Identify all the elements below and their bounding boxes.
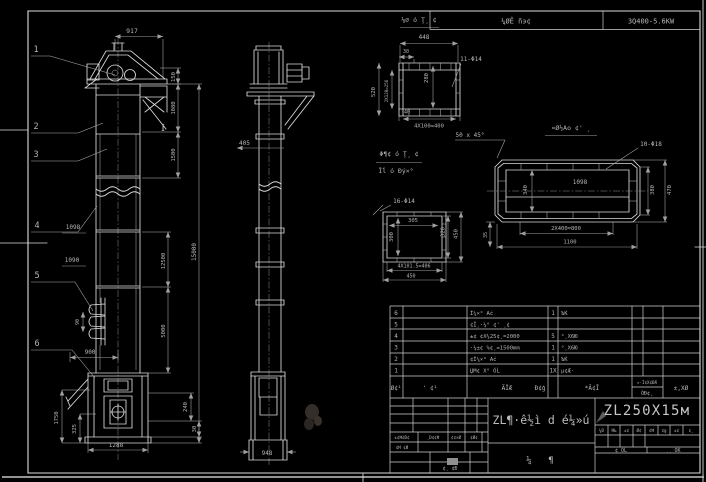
title-small-cells: ¼Ð ĦЬ ±¢ Ø¢ ¢Ħ ¢g ±¢ ¢¸: [599, 428, 694, 434]
dim-470: 470: [667, 185, 673, 195]
cell-no: 2: [394, 356, 398, 363]
dim-1080: 1080: [171, 101, 177, 114]
table-row: 2 ¢Ĭ¼×° Аć 1 ЪЌ: [394, 355, 568, 363]
dim-280: 280: [424, 73, 430, 83]
motor-spec: 3Q400-5.6KW: [628, 18, 675, 26]
model-number: ZL250X15м: [604, 403, 691, 419]
dim-800: 2X400=800: [551, 226, 581, 232]
cell-qty: 1X: [549, 368, 557, 375]
dim-bucket: 90: [75, 319, 81, 325]
dim-c1098: 1098: [573, 179, 588, 186]
dim-1288: 1288: [109, 442, 124, 449]
motor-spec-table: ¼ØÊ ñэ¢ 3Q400-5.6KW: [430, 11, 700, 30]
cell-name: ·¼±¢ %¢¸=1500mm: [470, 346, 520, 352]
dim-c-holes: 10-Φ18: [640, 141, 662, 148]
cell-mat: °¸X6Ю: [561, 346, 578, 352]
dim-340: 340: [523, 185, 529, 195]
dim-2x128: 2X128=256: [384, 79, 389, 102]
callout-6: 6: [34, 339, 39, 349]
dim-520: 520: [371, 87, 377, 97]
subtitle-right: ¶: [548, 456, 553, 466]
section-mark: I: [161, 124, 165, 134]
cell-mat: μ¢Æ·: [561, 369, 574, 375]
header-rem: ±,XØ: [674, 385, 689, 392]
dim-1090-left: 1090: [65, 257, 80, 264]
dim-948: 948: [262, 450, 273, 457]
callout-4: 4: [34, 221, 39, 231]
table-row: 6 Ĭ¼×° Аć 1 ЪЌ: [394, 309, 568, 317]
dim-405: 405: [239, 140, 250, 147]
header-no: Ø¢¹: [391, 385, 402, 392]
header-name: ÃЇÆ: [502, 385, 513, 392]
dim-1098-left: 1098: [66, 224, 81, 231]
table-row: 5 ¢Ĭ¸·¼° ¢' ¸¢: [394, 321, 510, 329]
rev-cell: ¢Ħ ¢Ø: [396, 445, 409, 450]
dim-320: 320: [441, 227, 447, 237]
cell-no: 3: [394, 345, 398, 352]
dim-1100: 1100: [563, 240, 576, 246]
cell-name: ±¢ ¢X¼25¢¸=2000: [470, 334, 520, 340]
cell-qty: 1: [551, 345, 555, 352]
table-header-row: Ø¢¹ ' ¢¹ ÃЇÆ Đ¢ģ *Ā¢Ī ¤·Ĩ¢X¢ĐÆ ÓÐ¢¸ ±,XØ: [391, 380, 689, 397]
dim-a-holes: 11-Φ14: [460, 56, 482, 63]
front-view-linework: [66, 38, 167, 460]
dim-30: 30: [192, 426, 198, 433]
title-block: ±¢Ħ¢Đ¢ ¸Đ¢¢Ħ ¢¢×Ø ¢Ø¢ ¢Ħ ¢Ø ¢¸ ¢Ð ZL¶·ê½…: [390, 398, 700, 473]
cell-no: 4: [394, 333, 398, 340]
signature-right: ¸¸ ÓЌ: [665, 447, 680, 454]
highlight-cell: [447, 458, 458, 465]
callout-2: 2: [33, 122, 38, 132]
parts-list: 6 Ĭ¼×° Аć 1 ЪЌ 5 ¢Ĭ¸·¼° ¢' ¸¢ 4 ±¢ ¢X¼25…: [390, 306, 700, 473]
small-cell: ¢g: [661, 428, 667, 433]
table-row: 3 ·¼±¢ %¢¸=1500mm 1 °¸X6Ю: [394, 345, 578, 352]
dim-1750: 1750: [54, 411, 60, 424]
cad-drawing: 917 150 1080 1500 15000 12500 5000 1098 …: [0, 0, 706, 482]
dim-head-width: 917: [126, 27, 138, 35]
dim-305: 305: [408, 218, 418, 224]
callout-1: 1: [33, 45, 38, 55]
detail-c-title: ¤Ø½Ао ¢' ¸: [551, 124, 590, 132]
dim-4x100: 4X100=400: [414, 124, 444, 130]
dim-35: 35: [483, 232, 489, 238]
detail-square-flange: Φ¶¢ ó Ţ¸ ¢ Ĭĺ ó Ðý×° 16-Φ14 305 300 320 …: [373, 150, 463, 282]
dim-300: 300: [389, 232, 395, 242]
header-code: ' ¢¹: [423, 385, 437, 392]
rev-cell: ¸Đ¢¢Ħ: [427, 435, 440, 440]
chamfer-note: 50 x 45°: [456, 132, 485, 139]
small-cell: ±¢: [674, 428, 680, 433]
cell-mat: °¸X6Ю: [561, 334, 578, 340]
small-cell: Ø¢: [636, 428, 642, 433]
table-row: 1 ЏΜ¢ X° ÓĹ 1X μ¢Æ·: [394, 368, 574, 375]
dim-b-holes: 16-Φ14: [393, 198, 415, 205]
dim-150: 150: [171, 72, 177, 82]
dim-40: 40: [404, 110, 410, 116]
dim-15000: 15000: [191, 243, 198, 261]
smudge-artifact: [304, 404, 322, 430]
dim-380: 380: [650, 185, 656, 195]
cell-name: ЏΜ¢ X° ÓĹ: [470, 368, 500, 375]
cell-no: 6: [394, 310, 398, 317]
small-cell: ¢¸: [688, 428, 693, 433]
dim-12500: 12500: [161, 253, 167, 270]
cell-mat: ЪЌ: [561, 356, 568, 363]
cell-mat: ЪЌ: [561, 310, 568, 317]
cell-qty: 1: [551, 310, 555, 317]
detail-casing-plate: 50 x 45° ¤Ø½Ао ¢' ¸ 1098 340 10-Φ18 380 …: [455, 124, 673, 249]
dim-448: 448: [419, 34, 430, 41]
side-view-linework: 405 948: [237, 42, 314, 466]
small-cell: ±¢: [624, 428, 630, 433]
dim-450r: 450: [454, 229, 460, 239]
motor-label: ¼ØÊ ñэ¢: [501, 17, 531, 26]
rev-cell: ¢Ø¢: [470, 435, 478, 440]
rev-cell: ¢¢×Ø: [451, 435, 462, 440]
dim-325: 325: [72, 424, 78, 434]
cell-qty: 5: [551, 333, 555, 340]
header-note-top: ¤·Ĩ¢X¢ĐÆ: [637, 380, 658, 385]
detail-head-flange: ⅛∅ ó Ţ¸ ¢ 448 30 280 11-Φ14 520 2X128=25…: [371, 15, 482, 130]
small-cell: ĦЬ: [611, 428, 617, 433]
header-qty: Đ¢ģ: [535, 385, 546, 392]
cell-qty: 1: [551, 356, 555, 363]
rev-cell: ¢¸ ¢Ð: [442, 466, 457, 472]
table-row: 4 ±¢ ¢X¼25¢¸=2000 5 °¸X6Ю: [394, 333, 578, 340]
cell-no: 1: [394, 368, 398, 375]
cell-no: 5: [394, 322, 398, 329]
rev-cell: ±¢Ħ¢Đ¢: [394, 435, 410, 440]
detail-b-note1: Φ¶¢ ó Ţ¸ ¢: [379, 150, 418, 158]
cad-viewport: 917 150 1080 1500 15000 12500 5000 1098 …: [0, 0, 706, 482]
subtitle-left: ¼: [526, 456, 531, 466]
header-note-bot: ÓÐ¢¸: [641, 390, 653, 397]
revision-table: ±¢Ħ¢Đ¢ ¸Đ¢¢Ħ ¢¢×Ø ¢Ø¢ ¢Ħ ¢Ø ¢¸ ¢Ð: [394, 435, 478, 472]
cell-name: ¢Ĭ¸·¼° ¢' ¸¢: [470, 321, 510, 329]
small-cell: ¼Ð: [599, 428, 605, 434]
small-cell: ¢Ħ: [649, 428, 655, 433]
dim-450b: 450: [406, 274, 415, 280]
dim-a30: 30: [403, 49, 409, 55]
signature-left: ¢ ÓĹ: [615, 447, 627, 454]
dim-1500: 1500: [171, 148, 177, 161]
detail-a-title: ⅛∅ ó Ţ¸ ¢: [401, 15, 436, 24]
detail-b-note2: Ĭĺ ó Ðý×°: [378, 166, 413, 175]
callout-5: 5: [34, 271, 39, 281]
callout-3: 3: [33, 150, 38, 160]
dim-240: 240: [183, 402, 189, 412]
header-mat: *Ā¢Ī: [585, 385, 600, 392]
dim-5000: 5000: [161, 324, 167, 337]
dim-900: 900: [85, 349, 96, 356]
drawing-title: ZL¶·ê½ì d é¼»ú: [493, 413, 590, 427]
cell-name: Ĭ¼×° Аć: [470, 309, 493, 317]
dim-406: 4X101.5=406: [397, 264, 430, 270]
cell-name: ¢Ĭ¼×° Аć: [470, 355, 497, 363]
